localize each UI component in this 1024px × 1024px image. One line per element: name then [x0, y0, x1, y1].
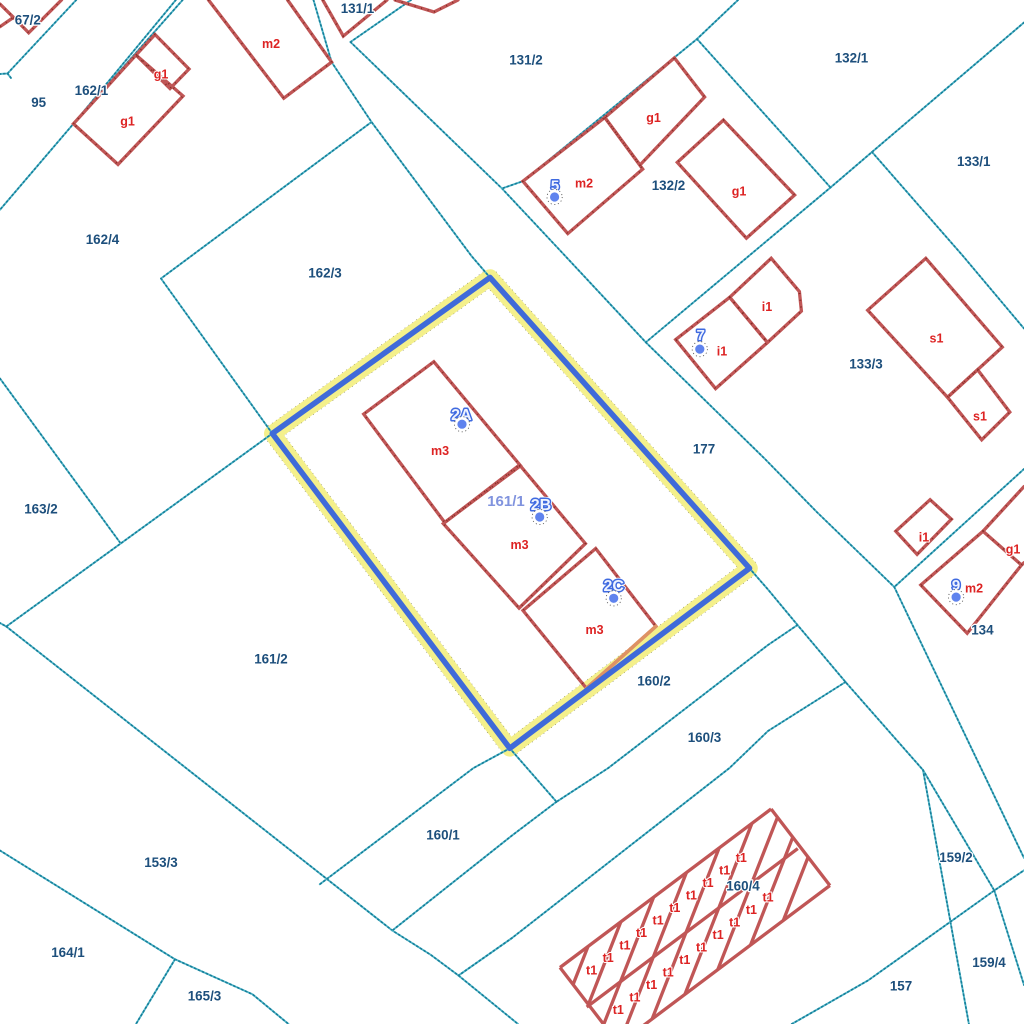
svg-text:t1: t1 [702, 876, 713, 890]
svg-text:134: 134 [971, 623, 994, 638]
svg-text:160/1: 160/1 [426, 828, 460, 843]
svg-text:t1: t1 [713, 928, 724, 942]
svg-text:t1: t1 [686, 888, 697, 902]
svg-text:157: 157 [890, 979, 912, 994]
svg-text:t1: t1 [619, 938, 630, 952]
svg-text:159/4: 159/4 [972, 955, 1006, 970]
svg-text:g1: g1 [646, 111, 661, 125]
svg-text:95: 95 [31, 95, 46, 110]
svg-text:t1: t1 [762, 891, 773, 905]
svg-text:s1: s1 [973, 410, 987, 424]
svg-text:t1: t1 [653, 913, 664, 927]
svg-text:t1: t1 [679, 953, 690, 967]
svg-text:i1: i1 [919, 531, 929, 545]
svg-text:m2: m2 [575, 177, 593, 191]
svg-text:t1: t1 [736, 851, 747, 865]
svg-text:g1: g1 [154, 68, 169, 82]
svg-text:m3: m3 [431, 444, 449, 458]
svg-text:t1: t1 [729, 916, 740, 930]
svg-text:159/2: 159/2 [939, 850, 973, 865]
svg-text:m3: m3 [510, 538, 528, 552]
svg-text:162/4: 162/4 [86, 232, 120, 247]
svg-text:131/2: 131/2 [509, 53, 543, 68]
svg-text:161/2: 161/2 [254, 652, 288, 667]
svg-text:g1: g1 [732, 185, 747, 199]
svg-text:162/1: 162/1 [75, 83, 109, 98]
svg-text:t1: t1 [636, 926, 647, 940]
svg-text:t1: t1 [646, 978, 657, 992]
svg-text:g1: g1 [120, 115, 135, 129]
svg-text:i1: i1 [762, 300, 772, 314]
svg-text:177: 177 [693, 442, 715, 457]
svg-text:t1: t1 [629, 990, 640, 1004]
svg-text:t1: t1 [669, 901, 680, 915]
svg-text:163/2: 163/2 [24, 502, 58, 517]
svg-text:t1: t1 [696, 940, 707, 954]
svg-text:m2: m2 [965, 582, 983, 596]
svg-text:g1: g1 [1006, 543, 1021, 557]
svg-text:t1: t1 [719, 863, 730, 877]
svg-text:m3: m3 [585, 623, 603, 637]
svg-text:160/2: 160/2 [637, 674, 671, 689]
svg-text:131/1: 131/1 [341, 1, 375, 16]
svg-text:t1: t1 [603, 951, 614, 965]
svg-text:m2: m2 [262, 37, 280, 51]
svg-text:132/2: 132/2 [652, 178, 686, 193]
svg-text:s1: s1 [930, 332, 944, 346]
svg-text:162/3: 162/3 [308, 266, 342, 281]
svg-text:161/1: 161/1 [487, 493, 525, 510]
svg-text:132/1: 132/1 [835, 51, 869, 66]
svg-text:i1: i1 [717, 345, 727, 359]
svg-text:t1: t1 [746, 903, 757, 917]
svg-text:133/1: 133/1 [957, 154, 991, 169]
svg-text:t1: t1 [663, 965, 674, 979]
svg-text:t1: t1 [586, 963, 597, 977]
svg-text:165/3: 165/3 [188, 989, 222, 1004]
svg-text:160/4: 160/4 [726, 879, 760, 894]
svg-text:160/3: 160/3 [688, 730, 722, 745]
svg-text:67/2: 67/2 [15, 13, 41, 28]
svg-text:t1: t1 [613, 1003, 624, 1017]
svg-text:164/1: 164/1 [51, 945, 85, 960]
svg-text:153/3: 153/3 [144, 855, 178, 870]
svg-text:133/3: 133/3 [849, 357, 883, 372]
